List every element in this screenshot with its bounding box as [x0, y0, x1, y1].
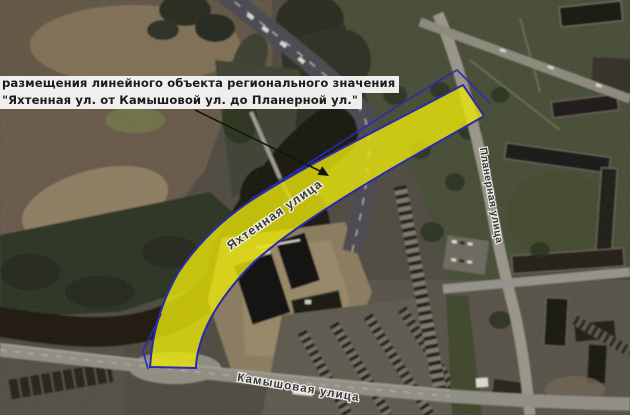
map-canvas: Яхтенная улица Планерная улица Камышовая…: [0, 0, 630, 415]
annotation-line-2: "Яхтенная ул. от Камышовой ул. до Планер…: [0, 93, 362, 110]
annotation-line-1: размещения линейного объекта регионально…: [0, 76, 399, 93]
satellite-map: Яхтенная улица Планерная улица Камышовая…: [0, 0, 630, 415]
zone-annotation-label: размещения линейного объекта регионально…: [0, 76, 399, 109]
